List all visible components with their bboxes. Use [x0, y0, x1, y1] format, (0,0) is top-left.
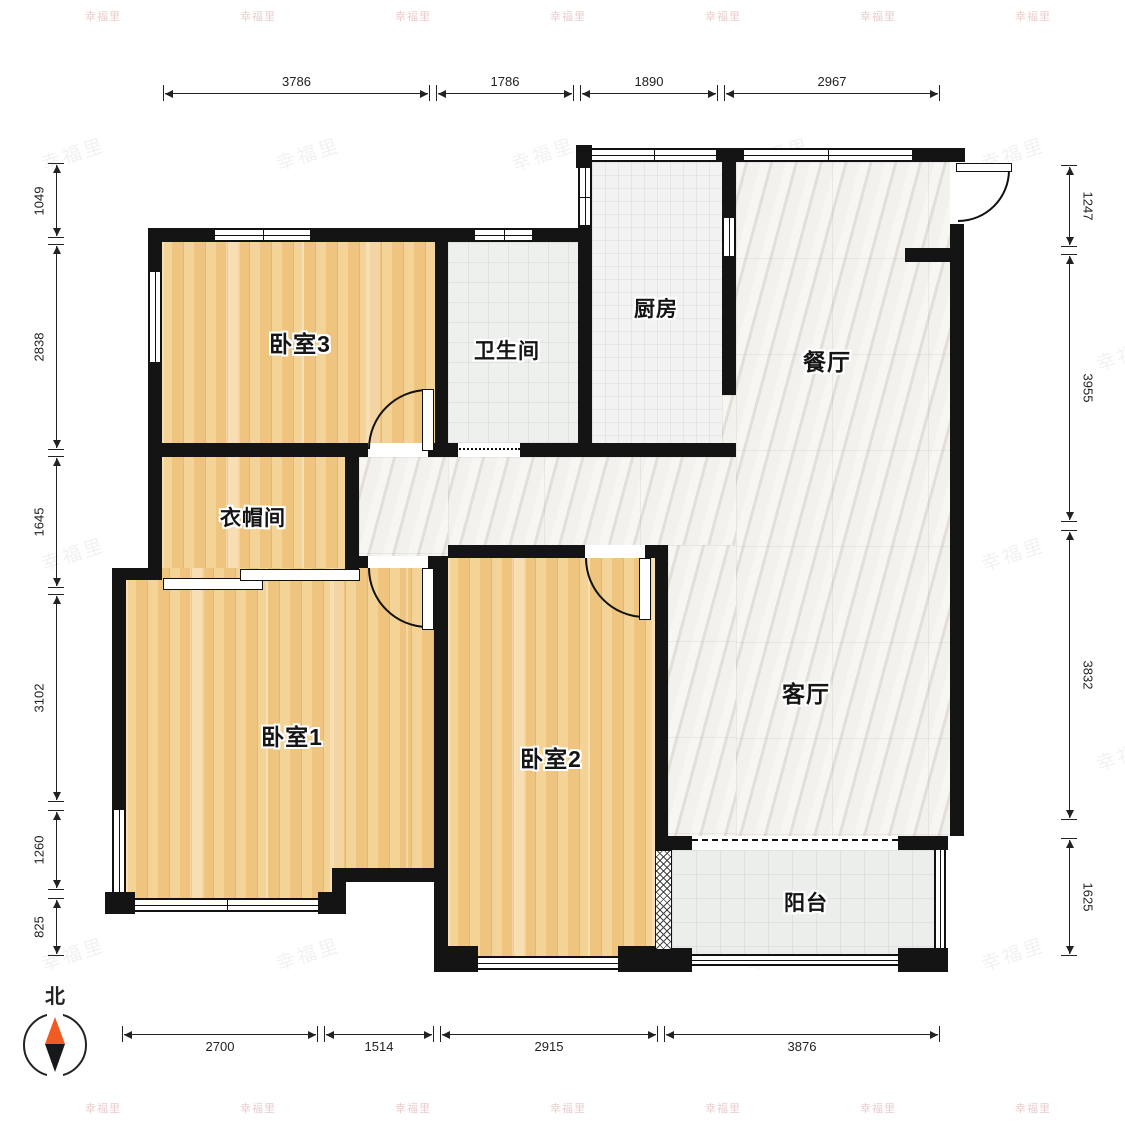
- dim-bottom-3: 2915: [440, 1028, 658, 1046]
- compass-circle: [23, 1013, 87, 1077]
- dim-right-2: 3955: [1061, 254, 1079, 522]
- compass-north-label: 北: [22, 980, 88, 1009]
- dim-bottom-1: 2700: [122, 1028, 318, 1046]
- dim-left-4: 3102: [48, 594, 66, 802]
- compass-needle-north: [45, 1017, 65, 1044]
- dim-left-6: 825: [48, 898, 66, 956]
- dimension-annotations: 3786 1786 1890 2967 2700 1514 2915 3876 …: [0, 0, 1125, 1125]
- dim-top-4: 2967: [724, 80, 940, 98]
- dim-right-4: 1625: [1061, 838, 1079, 956]
- floor-plan-image: 幸福里幸福里幸福里幸福里幸福里幸福里幸福里幸福里幸福里幸福里幸福里幸福里幸福里幸…: [0, 0, 1125, 1125]
- dim-left-5: 1260: [48, 810, 66, 890]
- dim-top-1: 3786: [163, 80, 430, 98]
- dim-bottom-4: 3876: [664, 1028, 940, 1046]
- dim-left-1: 1049: [48, 163, 66, 238]
- dim-right-1: 1247: [1061, 165, 1079, 247]
- dim-top-2: 1786: [436, 80, 574, 98]
- dim-left-3: 1645: [48, 456, 66, 588]
- compass: 北: [22, 980, 88, 1077]
- dim-right-3: 3832: [1061, 530, 1079, 820]
- dim-top-3: 1890: [580, 80, 718, 98]
- dim-bottom-2: 1514: [324, 1028, 434, 1046]
- compass-needle-south: [45, 1044, 65, 1072]
- dim-left-2: 2838: [48, 244, 66, 450]
